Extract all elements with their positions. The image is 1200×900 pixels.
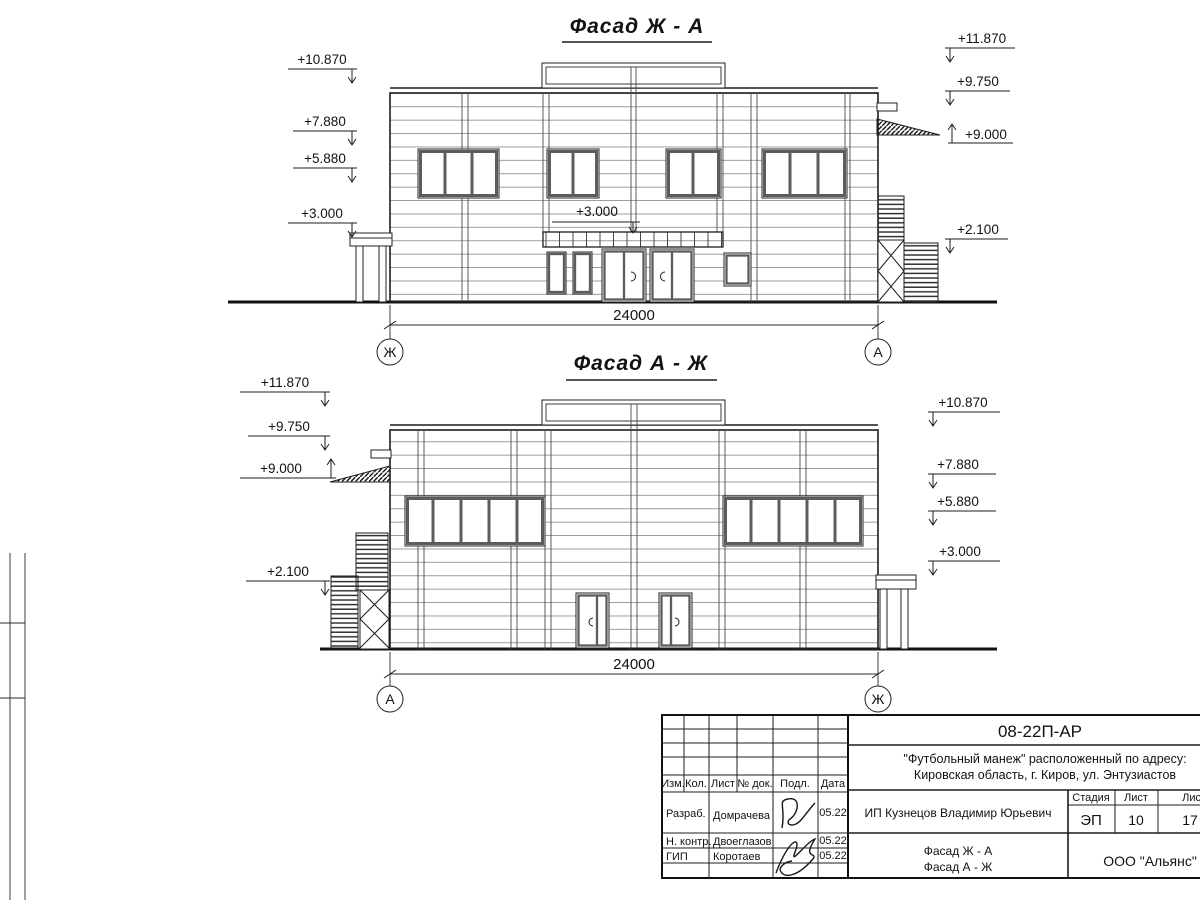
title-block: Изм. Кол. Лист № док. Подл. Дата Разраб.… [661,715,1200,878]
elevation-mark: +7.880 [293,114,357,145]
content-line2: Фасад А - Ж [924,860,993,874]
elevation-mark: +2.100 [945,222,1008,253]
stair-left [330,450,391,649]
elevation-mark: +10.870 [928,395,1000,426]
double-door [602,249,646,302]
content-line1: Фасад Ж - А [924,844,993,858]
project-address-line1: "Футбольный манеж" расположенный по адре… [903,752,1186,766]
project-address-line2: Кировская область, г. Киров, ул. Энтузиа… [914,768,1176,782]
elevation-label: +5.880 [304,151,346,166]
elevation-label: +7.880 [937,457,979,472]
elevation-mark: +11.870 [945,31,1015,62]
elevation-marks-bottom-right: +10.870 +7.880 +5.880 +3.000 [928,395,1000,575]
elevation-label: +2.100 [267,564,309,579]
porch-right [876,575,916,649]
elevation-label: +5.880 [937,494,979,509]
stair-canopy-hatch [877,119,940,135]
signer-name: Домрачева [713,810,771,822]
elevation-mark: +9.000 [948,124,1013,143]
stair-canopy-hatch [330,466,390,482]
double-door [650,249,694,302]
elevation-label: +10.870 [297,52,346,67]
window [547,149,599,198]
facade-top-title: Фасад Ж - А [570,15,705,38]
facade-top: Фасад Ж - А [228,15,1015,365]
facade-drawing-svg: Фасад Ж - А [0,0,1200,900]
elevation-marks-top-left: +10.870 +7.880 +5.880 +3.000 [288,52,357,237]
elevation-label: +9.000 [965,127,1007,142]
stage-label: Стадия [1072,792,1110,804]
client-name: ИП Кузнецов Владимир Юрьевич [865,806,1052,820]
elevation-mark: +9.750 [945,74,1010,105]
col-date: Дата [821,778,846,790]
elevation-mark: +2.100 [246,564,330,595]
elevation-marks-bottom-left: +11.870 +9.750 +9.000 +2.100 [240,375,336,595]
window [418,149,499,198]
doc-number: 08-22П-АР [998,722,1082,741]
small-window [724,253,751,286]
door [659,593,692,648]
elevation-label: +9.750 [957,74,999,89]
elevation-label: +7.880 [304,114,346,129]
facade-bottom-title: Фасад А - Ж [574,352,709,375]
sheet-left-border [0,553,25,900]
signer-role: Разраб. [666,808,706,820]
dimension-bottom: 24000 А Ж [377,652,891,712]
elevation-label: +3.000 [939,544,981,559]
col-list: Лист [711,778,735,790]
sheets-total: 17 [1182,812,1198,828]
col-kol: Кол. [685,778,707,790]
elevation-label: +3.000 [576,204,618,219]
entrance-canopy [543,232,723,247]
sheets-label: Листов [1182,792,1200,804]
elevation-label: +2.100 [957,222,999,237]
porch-left [350,233,392,302]
signer-date: 05.22 [819,835,847,847]
elevation-label: +11.870 [958,31,1006,46]
elevation-label: +9.750 [268,419,310,434]
axis-label: Ж [384,344,397,360]
facade-bottom: Фасад А - Ж [240,352,1000,712]
drawing-sheet: Фасад Ж - А [0,0,1200,900]
col-doc: № док. [737,778,772,790]
elevation-mark: +7.880 [928,457,996,488]
window [762,149,847,198]
elevation-label: +9.000 [260,461,302,476]
signer-date: 05.22 [819,807,847,819]
window [666,149,721,198]
elevation-label: +10.870 [938,395,987,410]
elevation-mark: +5.880 [293,151,357,182]
col-izm: Изм. [661,778,685,790]
door [576,593,609,648]
elevation-mark: +11.870 [240,375,330,406]
elevation-mark: +10.870 [288,52,357,83]
parapet-top [542,63,725,88]
ribbon-window [723,496,863,546]
company-name: ООО "Альянс" [1103,853,1197,869]
signer-role: ГИП [666,851,688,863]
elevation-mark: +3.000 [928,544,1000,575]
axis-label: А [385,691,395,707]
ribbon-window [405,496,545,546]
parapet-bottom [542,400,725,425]
axis-label: Ж [872,691,885,707]
signer-name: Двоеглазов [713,836,772,848]
signer-role: Н. контр. [666,836,711,848]
elevation-label: +11.870 [261,375,309,390]
dimension-label: 24000 [613,307,655,324]
elevation-marks-top-right: +11.870 +9.750 +9.000 +2.100 [945,31,1015,253]
col-sign: Подл. [780,778,810,790]
signer-name: Коротаев [713,851,761,863]
axis-label: А [873,344,883,360]
elevation-label: +3.000 [301,206,343,221]
stair-right [877,103,940,302]
dimension-label: 24000 [613,656,655,673]
stage-value: ЭП [1080,812,1102,829]
elevation-mark: +9.750 [248,419,330,450]
elevation-mark: +3.000 [288,206,357,237]
elevation-mark: +9.000 [240,459,336,478]
signer-date: 05.22 [819,850,847,862]
sheet-number: 10 [1128,812,1144,828]
sheet-label: Лист [1124,792,1148,804]
elevation-mark: +5.880 [928,494,996,525]
